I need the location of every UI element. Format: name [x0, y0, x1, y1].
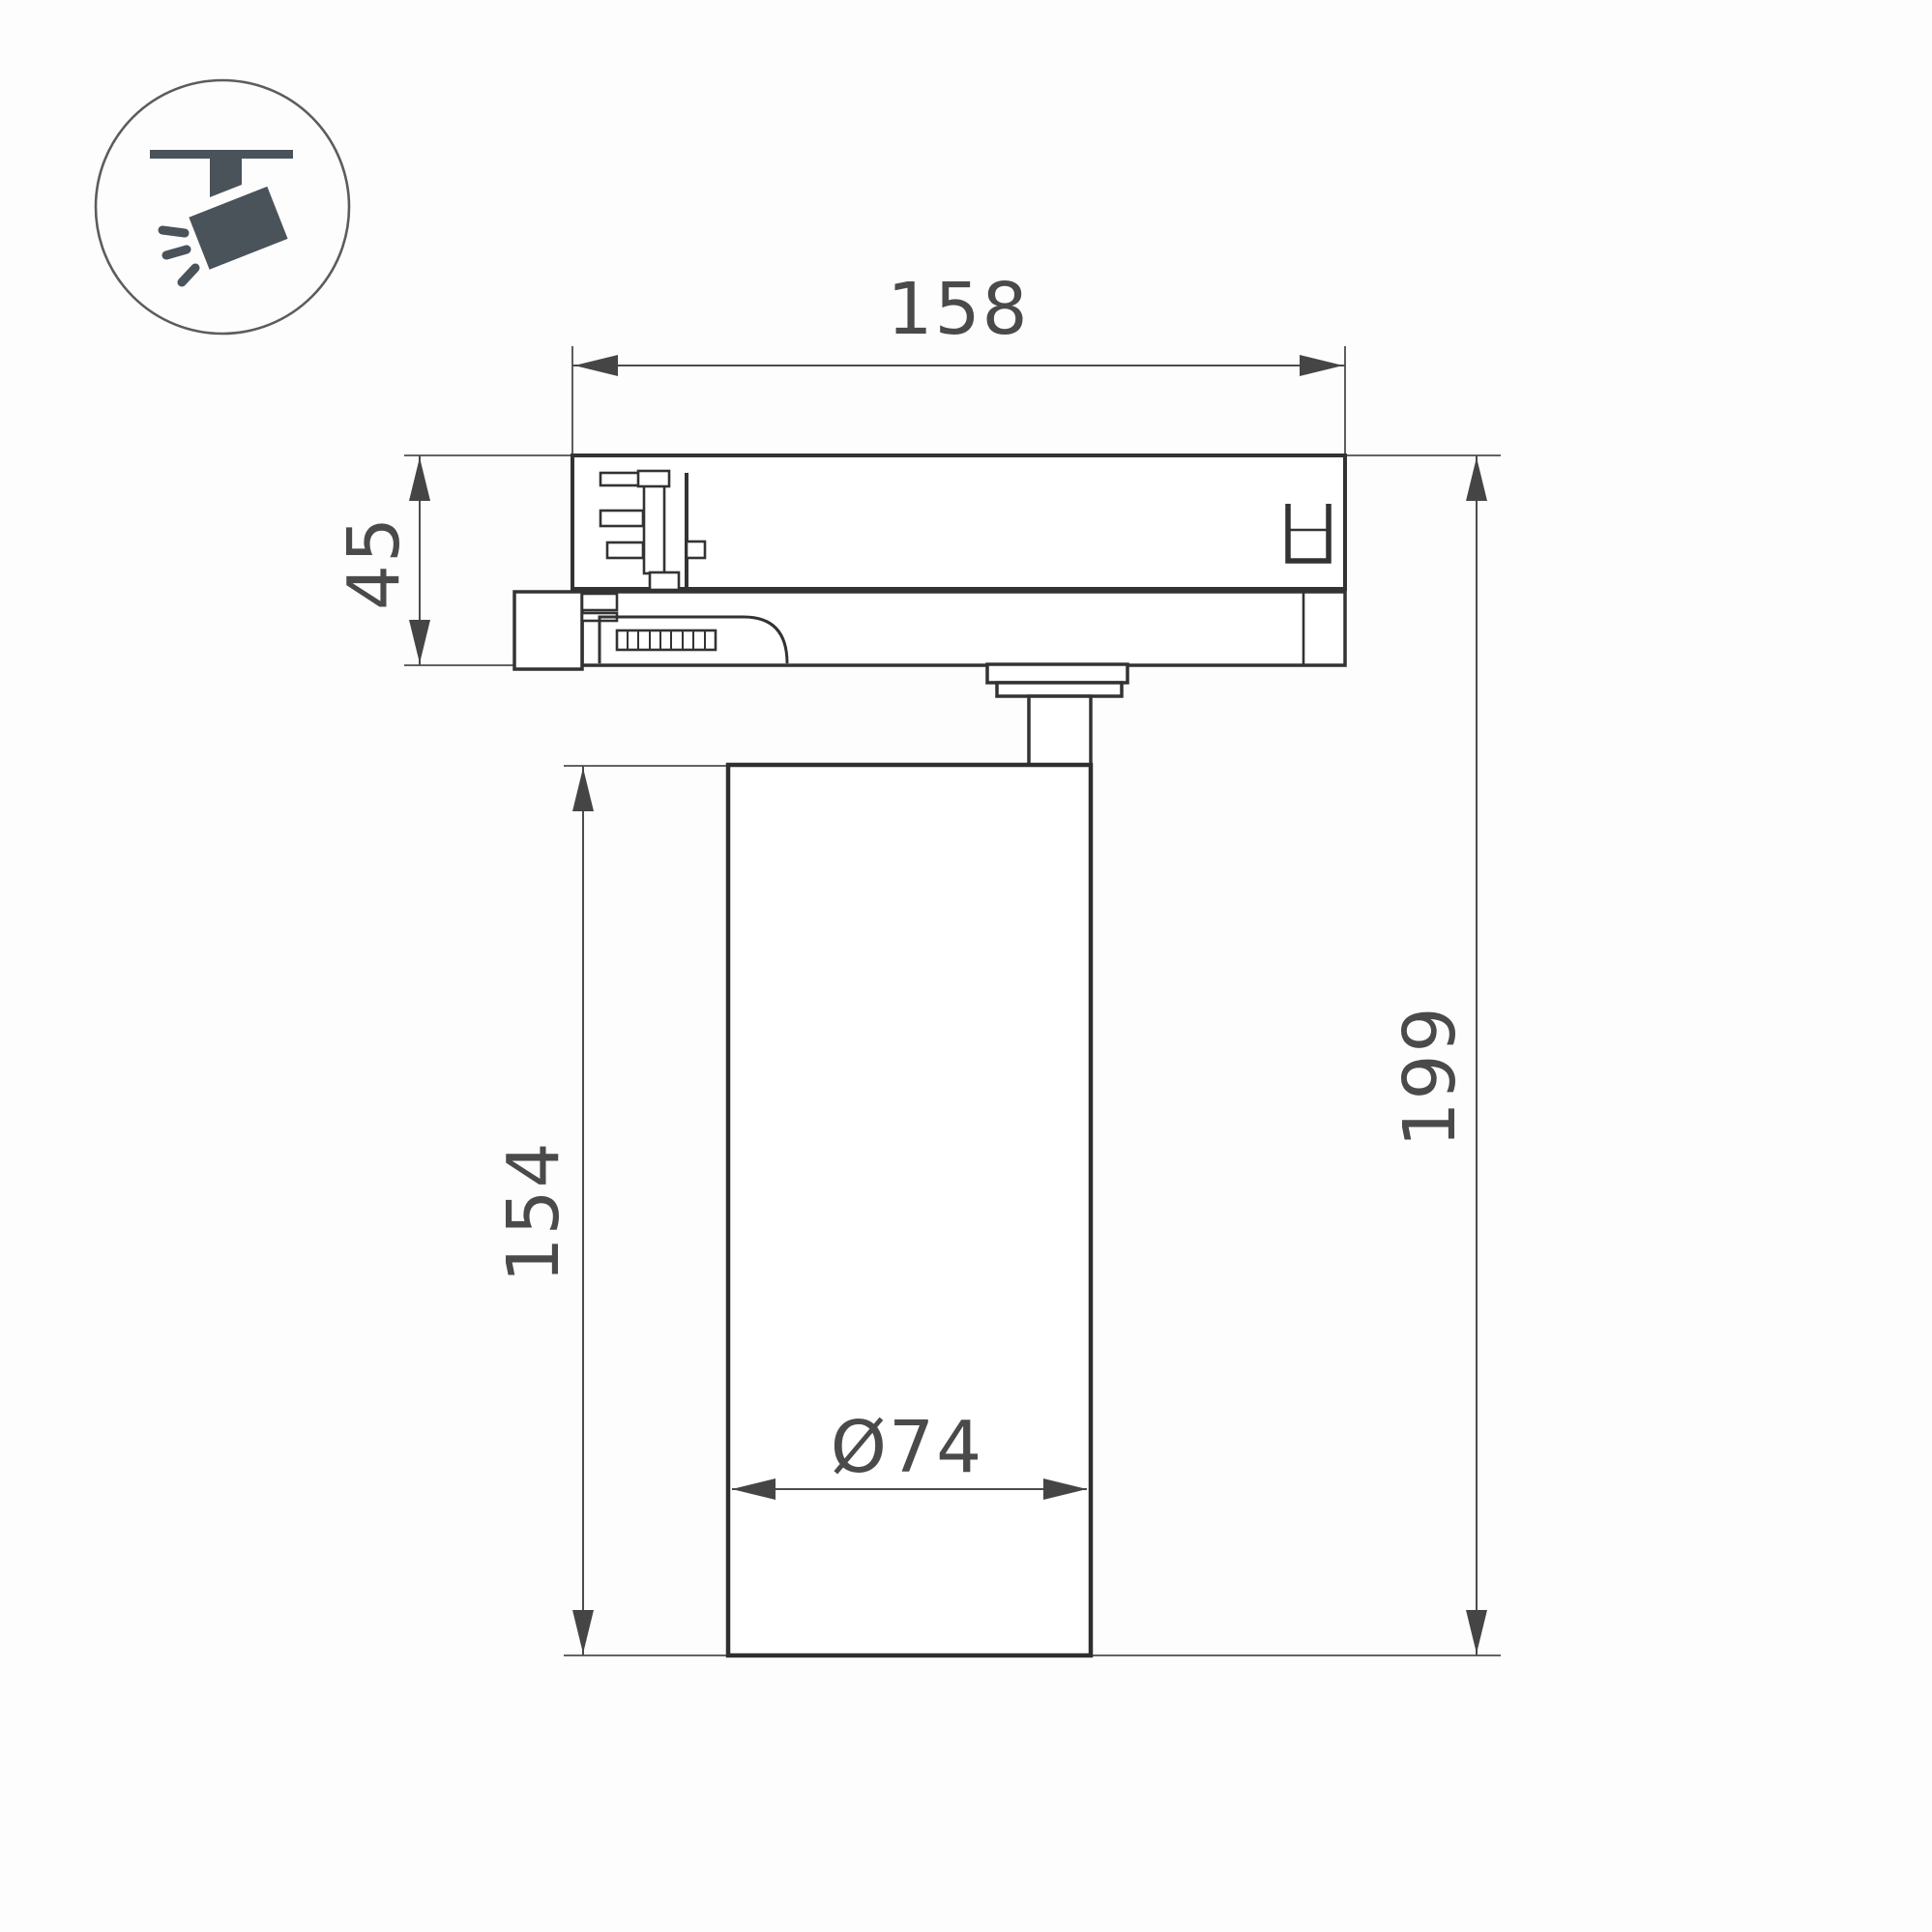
adapter-lower-housing	[582, 592, 1345, 665]
dimension-158: 158	[572, 268, 1345, 376]
dimension-199: 199	[1389, 455, 1487, 1655]
dimension-label-body-height: 154	[492, 1140, 575, 1282]
pivot-stem	[1029, 696, 1091, 765]
drawing-svg: 158 45 154 199 Ø74	[0, 0, 1932, 1932]
icon-lamp-head	[189, 187, 287, 270]
dimension-label-diameter: Ø74	[831, 1406, 983, 1489]
icon-light-rays	[162, 230, 195, 282]
lamp-body-cylinder	[728, 765, 1091, 1655]
icon-mount-stem	[210, 157, 242, 197]
track-spotlight-icon	[96, 80, 349, 334]
pivot-knuckle	[987, 664, 1127, 765]
dimension-label-total-height: 199	[1389, 1005, 1472, 1147]
dimension-45: 45	[333, 455, 430, 665]
technical-drawing-canvas: 158 45 154 199 Ø74	[0, 0, 1932, 1932]
dimension-154: 154	[492, 766, 594, 1655]
dimension-label-width: 158	[887, 268, 1029, 351]
dimension-label-adapter-height: 45	[333, 515, 416, 610]
track-adapter	[514, 455, 1345, 669]
